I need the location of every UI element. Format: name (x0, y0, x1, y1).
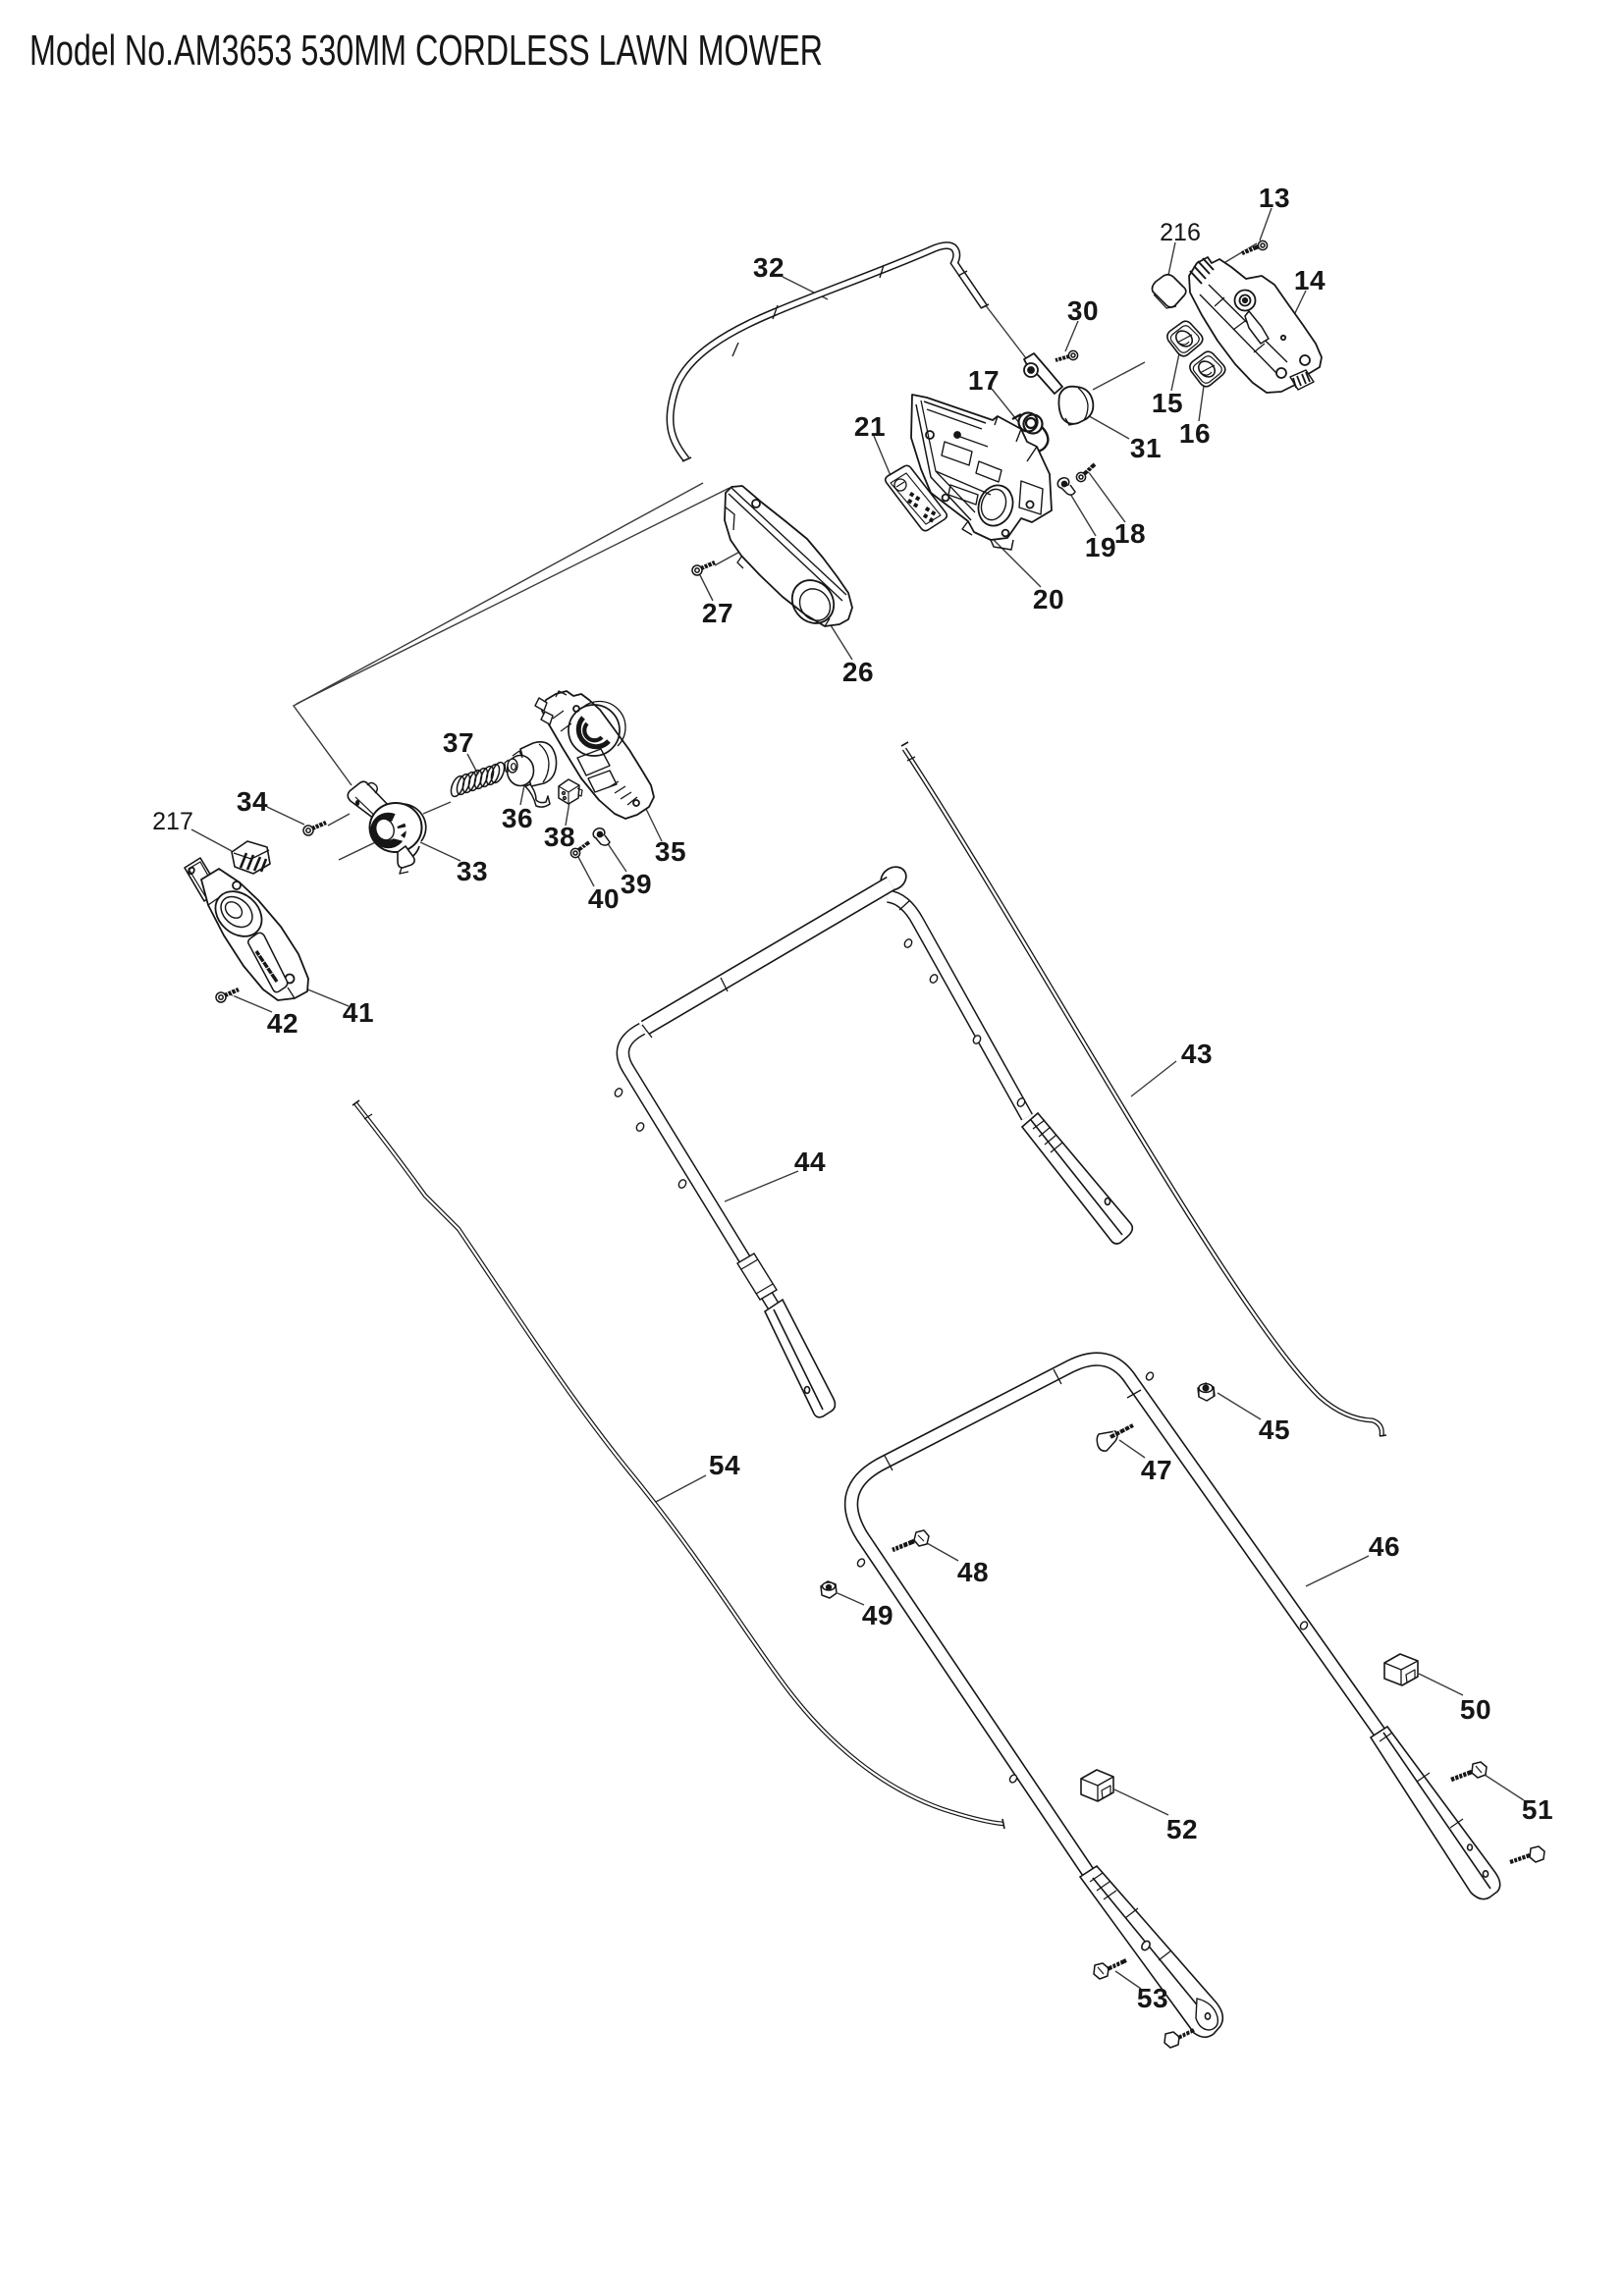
svg-text:47: 47 (1141, 1455, 1172, 1485)
svg-text:30: 30 (1067, 295, 1099, 326)
svg-text:20: 20 (1033, 584, 1064, 614)
svg-text:217: 217 (152, 808, 193, 835)
svg-text:49: 49 (862, 1600, 893, 1630)
svg-text:39: 39 (621, 869, 652, 899)
svg-text:21: 21 (854, 411, 886, 442)
svg-text:43: 43 (1181, 1039, 1213, 1069)
svg-text:31: 31 (1130, 433, 1162, 463)
svg-text:35: 35 (655, 836, 686, 867)
svg-text:18: 18 (1114, 518, 1146, 549)
svg-text:37: 37 (443, 727, 474, 758)
svg-text:45: 45 (1259, 1415, 1290, 1445)
svg-text:46: 46 (1369, 1531, 1400, 1562)
svg-text:48: 48 (957, 1557, 989, 1587)
svg-text:14: 14 (1294, 265, 1326, 295)
svg-text:41: 41 (343, 997, 374, 1028)
svg-text:54: 54 (709, 1450, 740, 1480)
svg-text:40: 40 (588, 883, 620, 914)
svg-text:17: 17 (968, 365, 1000, 396)
svg-text:36: 36 (502, 803, 533, 833)
svg-text:216: 216 (1160, 219, 1201, 246)
svg-text:34: 34 (237, 786, 268, 817)
svg-text:27: 27 (702, 598, 733, 628)
svg-text:Model No.AM3653 530MM CORDLESS: Model No.AM3653 530MM CORDLESS LAWN MOWE… (29, 27, 823, 75)
svg-text:26: 26 (842, 657, 874, 687)
svg-text:33: 33 (457, 856, 488, 886)
svg-text:13: 13 (1259, 183, 1290, 213)
svg-text:32: 32 (753, 252, 785, 283)
svg-text:52: 52 (1166, 1814, 1198, 1844)
svg-text:38: 38 (544, 822, 575, 852)
svg-text:16: 16 (1179, 418, 1211, 449)
svg-text:19: 19 (1085, 532, 1116, 562)
svg-text:44: 44 (794, 1147, 826, 1177)
svg-text:51: 51 (1522, 1794, 1553, 1825)
svg-text:42: 42 (267, 1008, 298, 1039)
svg-text:50: 50 (1460, 1694, 1491, 1725)
svg-text:15: 15 (1152, 388, 1183, 418)
svg-text:53: 53 (1137, 1983, 1168, 2013)
